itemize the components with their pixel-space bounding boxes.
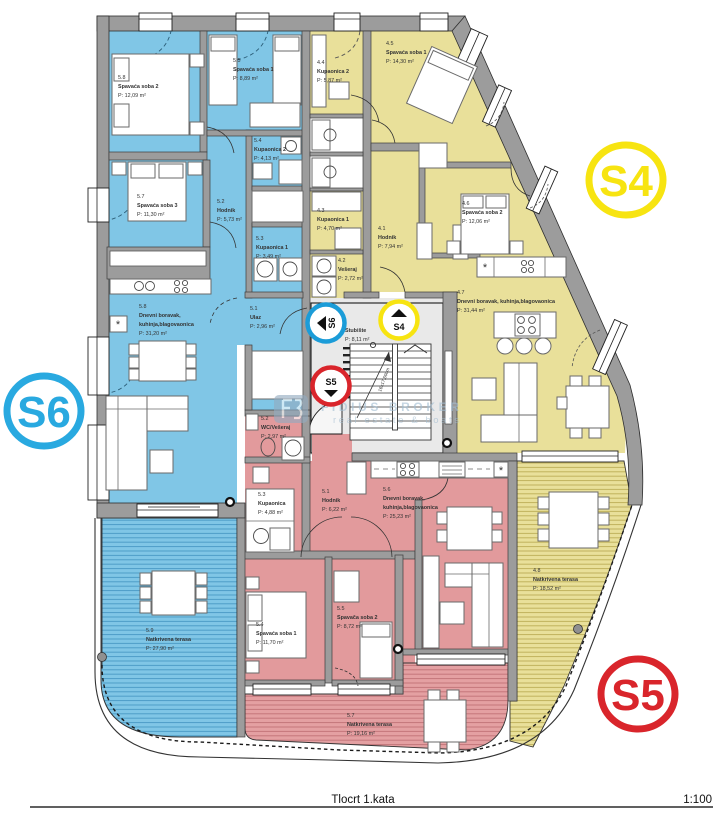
svg-text:P: 12,09 m²: P: 12,09 m² xyxy=(118,93,146,99)
svg-text:P: 8,11 m²: P: 8,11 m² xyxy=(345,337,370,343)
svg-text:S4: S4 xyxy=(599,157,653,206)
svg-text:Hodnik: Hodnik xyxy=(322,498,340,504)
svg-text:*: * xyxy=(116,319,121,331)
svg-text:P: 7,94 m²: P: 7,94 m² xyxy=(378,244,403,250)
svg-text:P: 27,90 m²: P: 27,90 m² xyxy=(146,646,174,652)
svg-text:1:100: 1:100 xyxy=(683,794,712,806)
svg-text:P: 2,72 m²: P: 2,72 m² xyxy=(338,276,363,282)
svg-text:Spavaća soba 3: Spavaća soba 3 xyxy=(137,203,177,209)
svg-text:Tlocrt 1.kata: Tlocrt 1.kata xyxy=(331,794,395,806)
svg-text:P: 11,70 m²: P: 11,70 m² xyxy=(256,640,284,646)
svg-text:5.9: 5.9 xyxy=(146,628,154,634)
svg-text:Kupaonica 2: Kupaonica 2 xyxy=(317,69,349,75)
svg-text:5.5: 5.5 xyxy=(337,606,345,612)
svg-text:P: 19,16 m²: P: 19,16 m² xyxy=(347,731,375,737)
svg-text:Spavača soba 2: Spavača soba 2 xyxy=(337,615,377,621)
svg-text:Natkrivena terasa: Natkrivena terasa xyxy=(533,577,579,583)
svg-text:5.4: 5.4 xyxy=(254,138,262,144)
svg-text:P: 4,13 m²: P: 4,13 m² xyxy=(254,156,279,162)
svg-text:Kupaonica: Kupaonica xyxy=(258,501,287,507)
svg-text:*: * xyxy=(483,262,488,274)
svg-text:5.3: 5.3 xyxy=(258,492,266,498)
svg-text:Stubište: Stubište xyxy=(345,328,366,334)
svg-text:5.1: 5.1 xyxy=(322,489,330,495)
svg-text:4.2: 4.2 xyxy=(338,258,346,264)
svg-text:P: 4,88 m²: P: 4,88 m² xyxy=(258,510,283,516)
svg-text:P: 18,52 m²: P: 18,52 m² xyxy=(533,586,561,592)
svg-text:P: 8,89 m²: P: 8,89 m² xyxy=(233,76,258,82)
svg-text:4.7: 4.7 xyxy=(457,290,465,296)
svg-text:P: 4,70 m²: P: 4,70 m² xyxy=(317,226,342,232)
svg-text:Ulaz: Ulaz xyxy=(250,315,261,321)
svg-text:4.4: 4.4 xyxy=(317,60,325,66)
svg-text:P: 6,22 m²: P: 6,22 m² xyxy=(322,507,347,513)
svg-text:5.4: 5.4 xyxy=(256,622,264,628)
svg-text:P: 5,73 m²: P: 5,73 m² xyxy=(217,217,242,223)
svg-text:WC/Vešeraj: WC/Vešeraj xyxy=(261,425,291,431)
svg-text:S4: S4 xyxy=(393,322,404,332)
svg-text:Spavaća soba 1: Spavaća soba 1 xyxy=(256,631,296,637)
svg-text:P: 11,30 m²: P: 11,30 m² xyxy=(137,212,165,218)
svg-text:S6: S6 xyxy=(327,317,337,328)
svg-text:*: * xyxy=(499,465,504,477)
svg-text:Spavaća soba 2: Spavaća soba 2 xyxy=(462,210,502,216)
svg-text:Spavaća soba 1: Spavaća soba 1 xyxy=(386,50,426,56)
svg-text:Vešeraj: Vešeraj xyxy=(338,267,357,273)
svg-text:Natkrivena terasa: Natkrivena terasa xyxy=(347,722,393,728)
svg-text:5.5: 5.5 xyxy=(233,58,241,64)
svg-text:Dnevni boravak,: Dnevni boravak, xyxy=(139,313,181,319)
svg-text:5.8: 5.8 xyxy=(139,304,147,310)
svg-text:Hodnik: Hodnik xyxy=(378,235,396,241)
svg-text:P: 2,96 m²: P: 2,96 m² xyxy=(250,324,275,330)
svg-text:Dnevni boravak, kuhinja,blagov: Dnevni boravak, kuhinja,blagovaonica xyxy=(457,299,556,305)
svg-text:P: 25,23 m²: P: 25,23 m² xyxy=(383,514,411,520)
svg-text:Kupaonica 1: Kupaonica 1 xyxy=(256,245,288,251)
svg-text:5.8: 5.8 xyxy=(118,75,126,81)
svg-text:S5: S5 xyxy=(611,671,665,720)
svg-text:P: 3,49 m²: P: 3,49 m² xyxy=(256,254,281,260)
svg-text:P: 12,06 m²: P: 12,06 m² xyxy=(462,219,490,225)
svg-text:P: 2,97 m²: P: 2,97 m² xyxy=(261,434,286,440)
svg-text:real estate & boats: real estate & boats xyxy=(333,415,462,426)
svg-text:Kupaonica 1: Kupaonica 1 xyxy=(317,217,349,223)
svg-text:5.2: 5.2 xyxy=(261,416,269,422)
svg-text:Spavaća soba 1: Spavaća soba 1 xyxy=(233,67,273,73)
svg-text:kuhinja,blagovaonica: kuhinja,blagovaonica xyxy=(139,322,195,328)
svg-text:kuhinja,blagovaonica: kuhinja,blagovaonica xyxy=(383,505,439,511)
svg-text:5.3: 5.3 xyxy=(256,236,264,242)
svg-text:P: 31,20 m²: P: 31,20 m² xyxy=(139,331,167,337)
svg-text:P: 14,30 m²: P: 14,30 m² xyxy=(386,59,414,65)
svg-text:P: 5,87 m²: P: 5,87 m² xyxy=(317,78,342,84)
svg-text:5.7: 5.7 xyxy=(347,713,355,719)
svg-text:5.7: 5.7 xyxy=(137,194,145,200)
svg-text:4.5: 4.5 xyxy=(386,41,394,47)
svg-text:P: 31,44 m²: P: 31,44 m² xyxy=(457,308,485,314)
svg-text:5.1: 5.1 xyxy=(250,306,258,312)
svg-text:5.2: 5.2 xyxy=(217,199,225,205)
svg-text:S6: S6 xyxy=(17,388,71,437)
svg-text:Natkrivena terasa: Natkrivena terasa xyxy=(146,637,192,643)
svg-text:4.3: 4.3 xyxy=(317,208,325,214)
svg-text:5.6: 5.6 xyxy=(383,487,391,493)
svg-text:4.1: 4.1 xyxy=(378,226,386,232)
svg-text:Spavaća soba 2: Spavaća soba 2 xyxy=(118,84,158,90)
svg-text:P: 8,72 m²: P: 8,72 m² xyxy=(337,624,362,630)
svg-text:Kupaonica 2: Kupaonica 2 xyxy=(254,147,286,153)
svg-text:4.8: 4.8 xyxy=(533,568,541,574)
svg-text:Dnevni boravak,: Dnevni boravak, xyxy=(383,496,425,502)
svg-text:Hodnik: Hodnik xyxy=(217,208,235,214)
svg-text:4.6: 4.6 xyxy=(462,201,470,207)
svg-text:S5: S5 xyxy=(325,377,336,387)
